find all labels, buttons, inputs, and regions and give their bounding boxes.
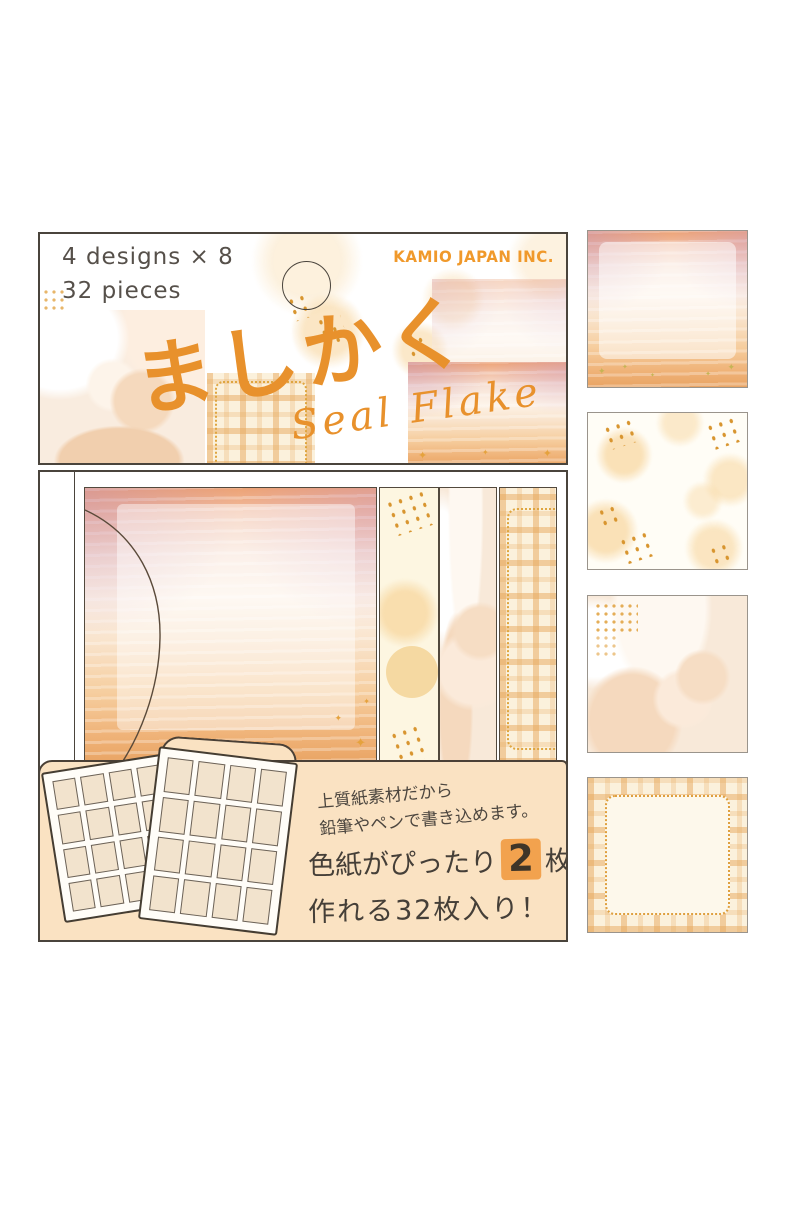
sticker-square [63,845,91,878]
bokeh-circle [379,578,438,648]
sheet-dessert-photo [439,487,497,765]
sticker-square [180,879,210,917]
bokeh-circle [656,412,704,447]
sparkle-icon: ✦ [543,448,552,459]
bokeh-blob [386,646,438,698]
dot-cluster [383,489,433,538]
sheet-sunset-sky: ✦ ✦ ✦ [84,487,377,765]
sticker-square [68,879,96,912]
quantity-highlight: 2 [501,838,541,879]
dot-grid-decoration [594,634,620,656]
package-front-panel: ✦ ✦ ✦ 4 designs × 8 32 pieces KAMIO JAPA… [38,232,568,465]
sticker-square [247,848,277,886]
quantity-description-line2: 作れる32枚入り！ [308,886,550,929]
sticker-square [185,840,215,878]
sparkle-icon: ✦ [482,449,489,457]
dot-grid-decoration [594,602,638,632]
sheet-plaid-frame [499,487,557,765]
design-swatch-bokeh-dots [587,412,748,570]
dotted-border [507,508,557,750]
sparkle-icon: ✦ [727,364,735,373]
sparkle-icon: ✦ [363,698,370,706]
sticker-square [164,757,194,795]
package-contents-panel: ✦ ✦ ✦ 上質紙素材だから 鉛筆やペンで書き込めます。 色紙がぴったり 2 枚… [38,470,568,942]
dot-cluster [703,415,740,451]
sparkle-icon: ✦ [622,364,628,371]
dotted-border-square [605,795,730,915]
designs-count-label: 4 designs × 8 [62,244,234,270]
quantity-prefix: 色紙がぴったり [308,840,498,882]
sparkle-icon: ✦ [334,715,342,724]
sticker-square [96,875,124,908]
dot-cluster [387,721,432,765]
sparkle-icon: ✦ [650,373,655,379]
sticker-square [211,883,241,921]
sticker-square [190,801,220,839]
sticker-square [91,841,119,874]
quantity-description: 色紙がぴったり 2 枚分 [308,837,568,883]
sparkle-icon: ✦ [705,371,711,378]
sheet-curl-line [85,488,376,764]
sticker-grid [149,757,287,924]
bokeh-circle [683,481,723,521]
sparkle-icon: ✦ [418,450,427,461]
product-photo-canvas: { "package": { "header": { "designs_line… [0,0,788,1232]
brand-logo: KAMIO JAPAN INC. [393,247,554,266]
sticker-square [257,769,287,807]
sticker-square [252,808,282,846]
sticker-square [52,778,80,811]
sticker-square [114,803,142,836]
sheet-inner-square [599,242,736,359]
sticker-square [149,876,179,914]
sticker-sheet [138,746,298,936]
sticker-square [154,836,184,874]
sticker-square [242,887,272,925]
sticker-square [221,804,251,842]
design-swatch-sunset-sky: ✦ ✦ ✦ ✦ ✦ [587,230,748,388]
sticker-square [86,807,114,840]
sparkle-icon: ✦ [355,737,366,750]
sheet-bokeh-dots [379,487,439,765]
sticker-square [226,765,256,803]
sticker-square [80,773,108,806]
sticker-square [216,844,246,882]
sticker-square [108,769,136,802]
sticker-square [195,761,225,799]
sparkle-icon: ✦ [598,368,606,377]
design-swatch-plaid-frame [587,777,748,933]
sticker-square [119,836,147,869]
sticker-square [58,811,86,844]
quantity-suffix: 枚分 [544,838,568,878]
design-swatch-dessert-photo [587,595,748,753]
pieces-count-label: 32 pieces [62,278,182,304]
sticker-square [159,797,189,835]
